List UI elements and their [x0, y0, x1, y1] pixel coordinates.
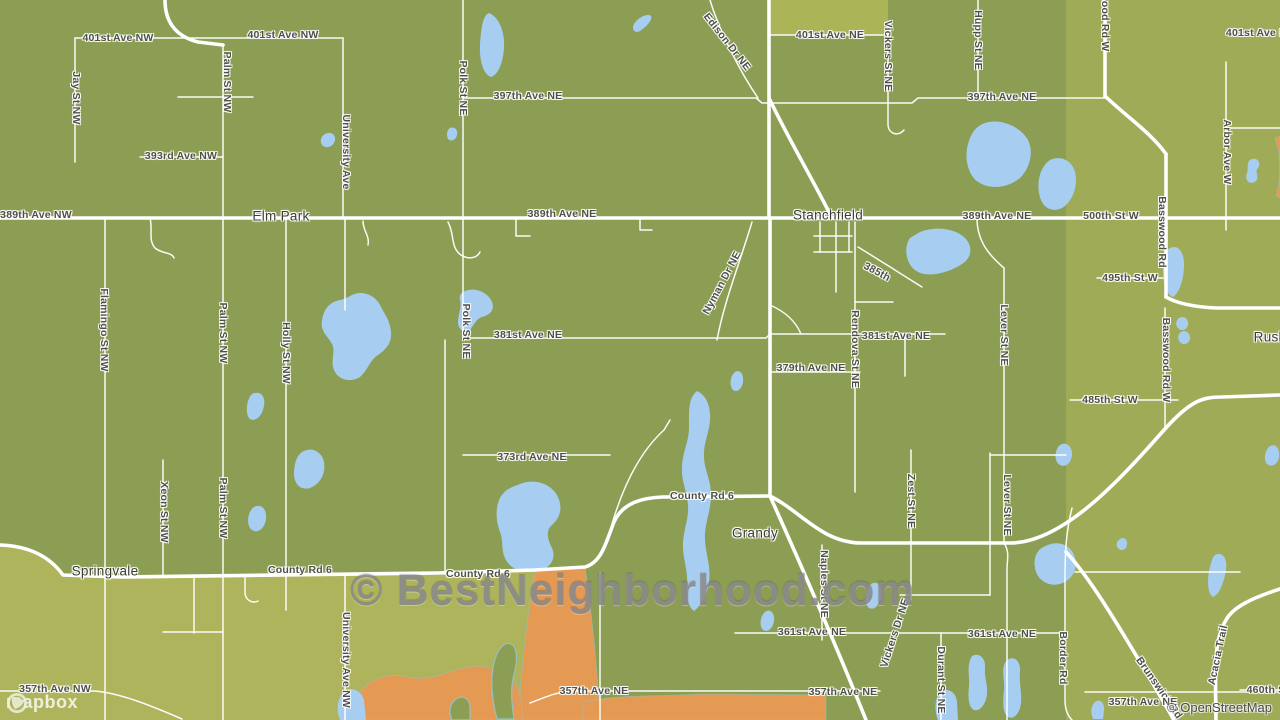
osm-attribution[interactable]: © OpenStreetMap [1167, 700, 1272, 715]
map-graphics [0, 0, 1280, 720]
regions-layer [0, 0, 1280, 720]
map-canvas[interactable]: 401st Ave NW401st Ave NWJay St NWPalm St… [0, 0, 1280, 720]
mapbox-icon [6, 692, 28, 714]
mapbox-logo[interactable]: mapbox [6, 692, 78, 713]
